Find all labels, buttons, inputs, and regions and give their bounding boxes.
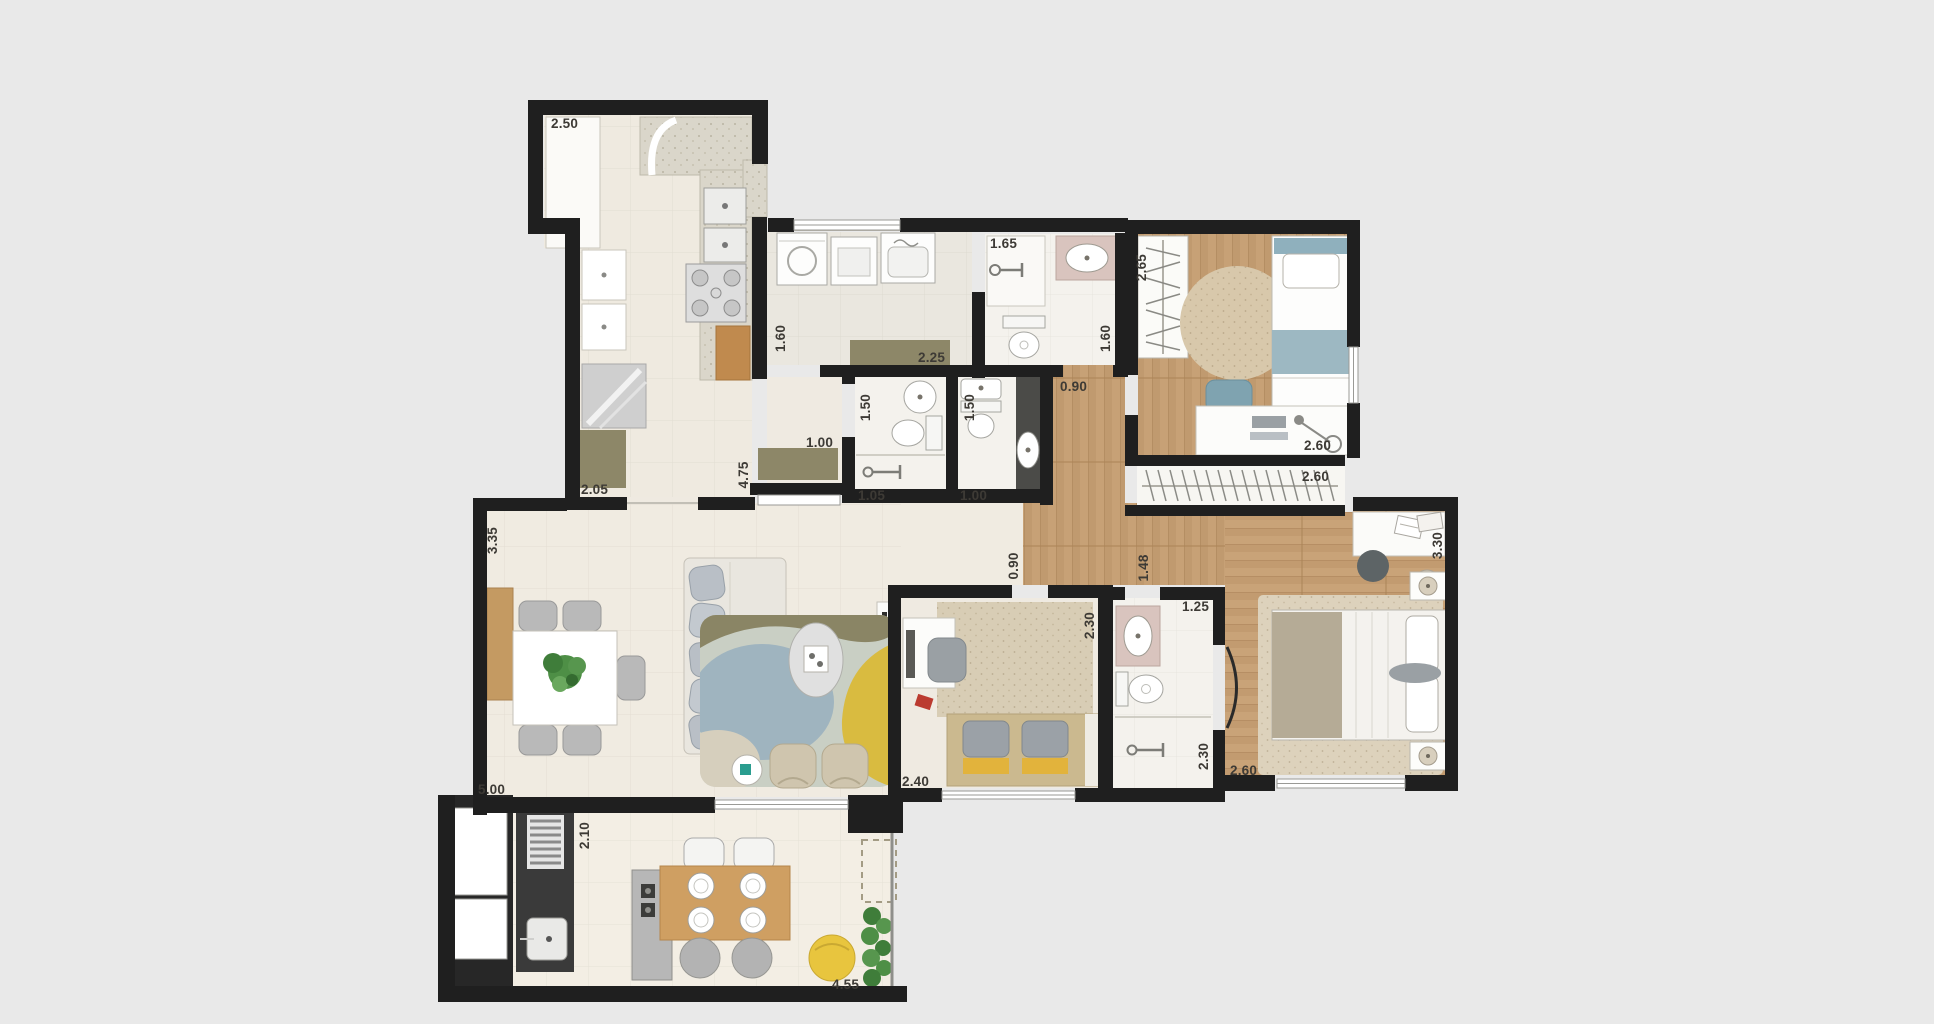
dim-suite1-bath-width: 1.65	[990, 236, 1017, 251]
dim-terrace-depth: 2.10	[577, 822, 592, 849]
dim-hall-cabinet: 1.00	[806, 435, 833, 450]
dining-chair	[617, 656, 645, 700]
dim-kitchen-width-bottom: 2.05	[581, 482, 608, 497]
dim-terrace-width: 4.55	[832, 977, 859, 992]
dining-chair	[563, 725, 601, 755]
laptop-icon	[1252, 416, 1286, 428]
dim-lavabo-width: 1.05	[858, 488, 885, 503]
floor-plan-svg: 2.50 1.65 2.65 1.60 2.25 1.50 1.50 1.60 …	[0, 0, 1934, 1024]
armchair	[822, 744, 868, 788]
dryer-icon	[831, 237, 877, 285]
washer-icon	[777, 233, 827, 285]
dim-bath2-depth: 1.50	[962, 394, 977, 421]
cutting-board	[716, 326, 750, 380]
dim-corridor-width: 1.48	[1136, 554, 1151, 581]
throw-yellow	[1022, 758, 1068, 774]
dim-suite1-bath-depth: 1.60	[1098, 325, 1113, 352]
cushion	[963, 721, 1009, 757]
sideboard	[487, 588, 513, 700]
dim-corridor-passage: 0.90	[1006, 552, 1021, 579]
dim-kitchen-width-top: 2.50	[551, 116, 578, 131]
terrace-table	[660, 866, 790, 940]
dim-living-depth: 3.35	[485, 527, 500, 554]
dim-living-width: 5.00	[478, 782, 505, 797]
dim-bedroom1-depth: 2.65	[1134, 254, 1149, 281]
single-bed	[1272, 236, 1350, 406]
round-basin-icon	[904, 381, 936, 413]
laundry-tank-icon	[881, 233, 935, 283]
bolster-pillow	[1389, 663, 1441, 683]
toilet-icon	[1116, 672, 1163, 706]
pillow	[1406, 676, 1438, 732]
dim-master-width: 2.60	[1230, 763, 1257, 778]
floor-plan-image: 2.50 1.65 2.65 1.60 2.25 1.50 1.50 1.60 …	[0, 0, 1934, 1024]
dim-closet-width: 2.60	[1302, 469, 1329, 484]
dim-bedroom1-width: 2.60	[1304, 438, 1331, 453]
throw-yellow	[963, 758, 1009, 774]
grill-counter	[516, 802, 574, 972]
pouf-yellow	[809, 935, 855, 981]
dim-master-bath-width: 1.25	[1182, 599, 1209, 614]
dim-kitchen-passage: 1.60	[773, 325, 788, 352]
cushion	[1022, 721, 1068, 757]
dim-office-width: 2.40	[902, 774, 929, 789]
hall-cabinet	[758, 448, 838, 480]
dim-master-depth: 3.30	[1430, 532, 1445, 559]
dim-kitchen-depth: 4.75	[736, 461, 751, 488]
fridge-icon	[582, 364, 646, 428]
nightstand	[1410, 572, 1446, 600]
dim-office-depth: 2.30	[1082, 612, 1097, 639]
dim-master-bath-depth: 2.30	[1196, 743, 1211, 770]
armchair	[770, 744, 816, 788]
office-chair	[928, 638, 966, 682]
coffee-table	[789, 623, 843, 697]
side-table	[732, 755, 762, 785]
dining-chair	[563, 601, 601, 631]
dim-hall-width: 0.90	[1060, 379, 1087, 394]
double-bed	[1272, 610, 1448, 740]
vanity-sink-icon	[1116, 606, 1160, 666]
nightstand	[1410, 742, 1446, 770]
monitor-icon	[906, 630, 915, 678]
dining-chair	[519, 601, 557, 631]
dim-lavabo-depth: 1.50	[858, 394, 873, 421]
dim-bath2-width: 1.00	[960, 488, 987, 503]
dim-laundry-width: 2.25	[918, 350, 945, 365]
kitchen-olive-cabinet	[580, 430, 626, 488]
stool-icon	[1357, 550, 1389, 582]
daybed	[947, 714, 1099, 786]
vanity-sink-icon	[1056, 236, 1118, 280]
stove-icon	[686, 264, 746, 322]
dining-chair	[519, 725, 557, 755]
